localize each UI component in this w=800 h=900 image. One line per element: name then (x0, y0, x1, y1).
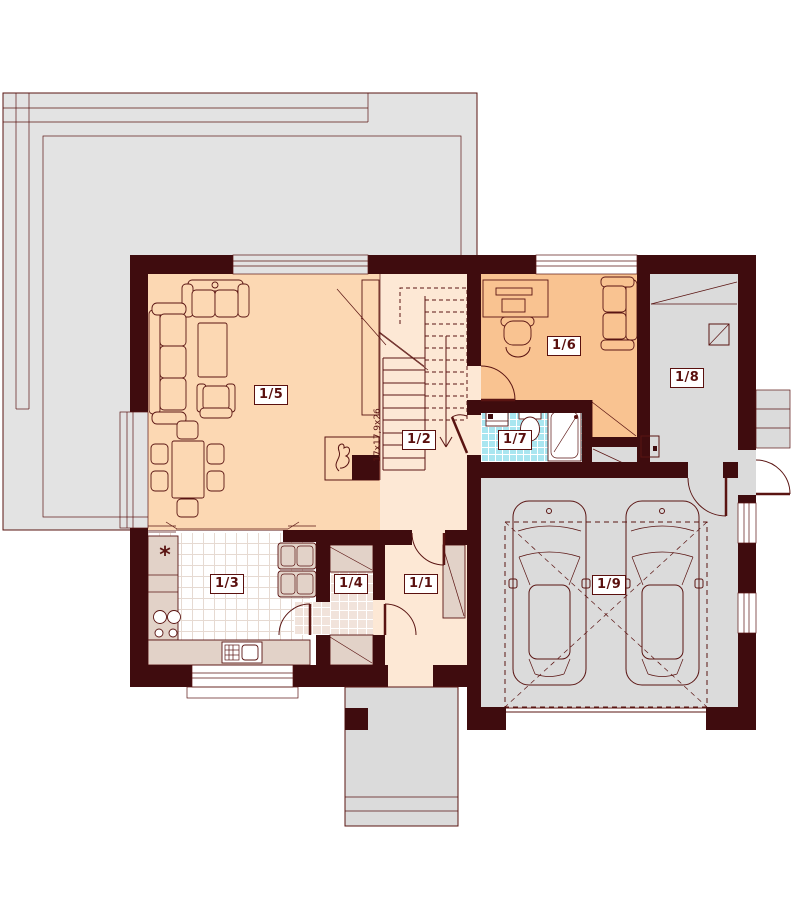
hall-wardrobe (443, 545, 465, 618)
stair-dimension-text: 17x17,9x26 (373, 389, 385, 481)
room-label-kitchen: 1/3 (210, 574, 244, 594)
room-label-garage: 1/9 (592, 575, 626, 595)
room-label-pantry: 1/4 (334, 574, 368, 594)
room-label-hall-stairs: 1/2 (402, 430, 436, 450)
garage-window-lower (738, 593, 756, 633)
two-seat-sofa (182, 280, 249, 317)
armchair (197, 384, 235, 418)
kitchen-sink (222, 642, 262, 663)
desk (483, 280, 548, 317)
garage-gate (506, 708, 706, 712)
pantry-closets (330, 545, 373, 665)
room-label-entrance-hall: 1/1 (404, 574, 438, 594)
room-label-vestibule: 1/8 (670, 368, 704, 388)
garage-window-upper (738, 503, 756, 543)
study-window-top (536, 255, 637, 274)
shower (548, 409, 581, 461)
room-label-living-room: 1/5 (254, 385, 288, 405)
tall-cabinets (278, 543, 316, 597)
study-sofa (601, 277, 637, 350)
three-seat-sofa (149, 303, 186, 424)
coffee-table (198, 323, 227, 377)
entrance-porch (345, 687, 458, 826)
room-label-study: 1/6 (547, 336, 581, 356)
floor-plan-canvas: 1/1 1/2 1/3 1/4 1/5 1/6 1/7 1/8 1/9 17x1… (0, 0, 800, 900)
washbasin (486, 411, 508, 426)
room-label-bathroom: 1/7 (498, 430, 532, 450)
side-entrance-door (756, 390, 790, 494)
door-to-kitchen (279, 604, 310, 635)
kitchen-window-bottom (187, 665, 298, 698)
floor-plan-drawing (0, 0, 800, 900)
kitchen-appliance-symbol: * (155, 543, 175, 567)
